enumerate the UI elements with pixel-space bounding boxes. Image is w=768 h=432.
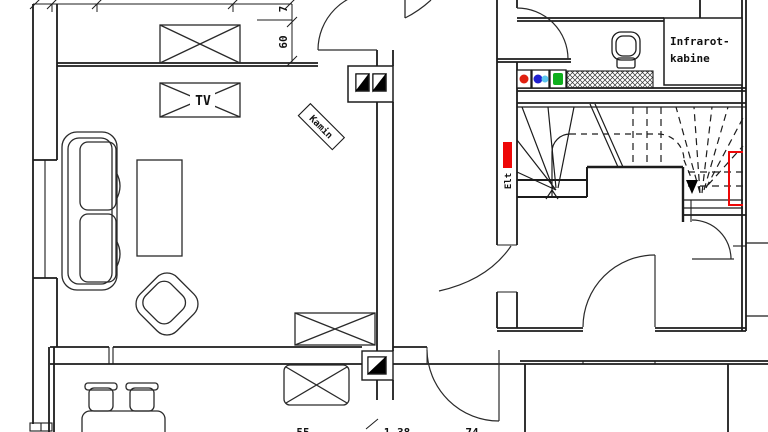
tv-label: TV [195,94,211,109]
dim-niche-height: 60 [277,35,290,48]
dim-bottom-right: 74 [465,426,479,432]
red-revision-marker [729,152,743,205]
armchair [130,267,204,341]
fixture-red [517,70,531,88]
bath-fixtures [517,32,653,88]
fixture-blue [532,70,549,88]
furniture [62,25,375,432]
dim-niche-top: 7 [277,6,290,13]
sideboard-box [295,313,375,345]
dim-bottom-middle: 1.38 [384,426,411,432]
electrical-panel [503,142,512,168]
dining-chair [126,383,158,411]
electrical-label: Elt [504,173,514,189]
fireplace-label: Kamin [298,104,344,150]
chimney [348,66,393,102]
toilet [612,32,640,68]
staircase [517,103,746,222]
floor-plan-canvas: 7 60 55 1.38 74 [0,0,768,432]
sauna-label-box: Infrarot- kabine [664,18,742,85]
svg-text:kabine: kabine [670,52,710,65]
coffee-table [137,160,182,256]
wardrobe-box [160,25,240,63]
sofa [62,132,120,290]
shaft-symbol [362,351,393,380]
dim-bottom-left: 55 [296,426,309,432]
walls [30,0,768,432]
heater-hatch-band [567,71,653,88]
dining-table [82,411,165,432]
dining-chair [85,383,117,411]
floor-plan-drawing: 7 60 55 1.38 74 [0,0,768,432]
svg-text:Infrarot-: Infrarot- [670,35,730,48]
stair-direction-arrow [686,180,698,194]
lower-crossed-box [284,365,349,405]
fixture-green [550,70,566,88]
